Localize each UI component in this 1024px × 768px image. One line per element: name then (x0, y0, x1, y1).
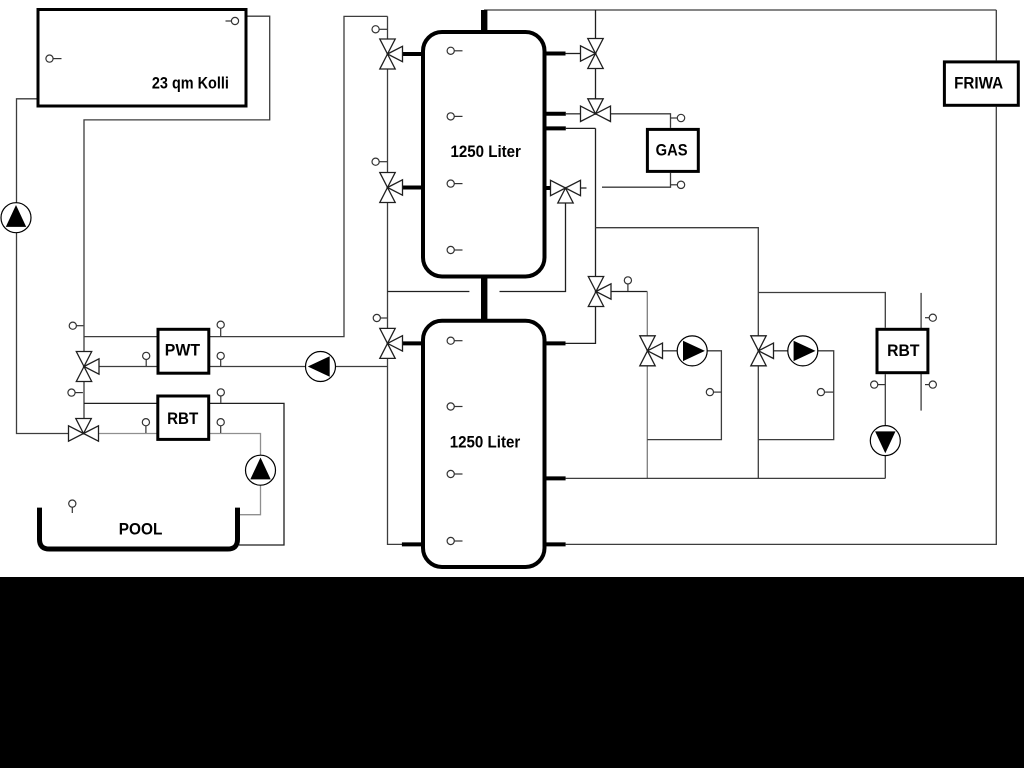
svg-text:FRIWA: FRIWA (954, 74, 1003, 93)
svg-text:RBT: RBT (887, 341, 920, 360)
svg-text:RBT: RBT (167, 409, 199, 428)
svg-text:POOL: POOL (119, 520, 163, 539)
svg-text:23 qm Kolli: 23 qm Kolli (152, 74, 229, 93)
svg-text:1250 Liter: 1250 Liter (450, 432, 521, 451)
svg-text:GAS: GAS (656, 141, 688, 160)
svg-text:1250 Liter: 1250 Liter (450, 142, 521, 161)
svg-text:PWT: PWT (165, 341, 201, 360)
